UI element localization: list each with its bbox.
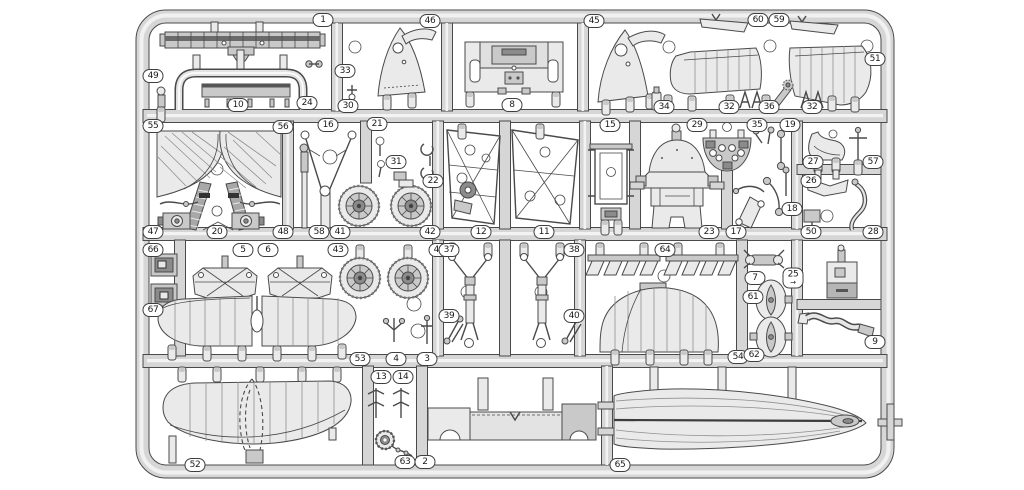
part-label-27: 27 — [803, 155, 824, 169]
part-label-56: 56 — [273, 120, 294, 134]
part-49-small-fitting — [157, 87, 165, 122]
sprue-parts-map: 1 46 45 60 59 49 33 51 24 10 30 8 34 32 … — [0, 0, 1024, 490]
part-label-8: 8 — [502, 98, 523, 112]
part-label-67: 67 — [143, 303, 164, 317]
part-number: 17 — [731, 227, 742, 237]
part-number: 32 — [724, 102, 735, 112]
part-label-50: 50 — [801, 225, 822, 239]
part-number: 16 — [323, 120, 334, 130]
part-label-24: 24 — [297, 96, 318, 110]
part-label-29: 29 — [687, 118, 708, 132]
part-label-18: 18 — [782, 202, 803, 216]
part-label-33: 33 — [335, 64, 356, 78]
part-label-42: 42 — [420, 225, 441, 239]
part-label-21: 21 — [367, 117, 388, 131]
part-number: 2 — [422, 457, 427, 467]
part-number: 58 — [314, 227, 325, 237]
part-number: 37 — [444, 245, 455, 255]
part-number: 65 — [615, 460, 626, 470]
part-number: 29 — [692, 120, 703, 130]
part-number: 40 — [569, 311, 580, 321]
part-number: 47 — [148, 227, 159, 237]
part-number: 62 — [749, 350, 760, 360]
part-label-52: 52 — [185, 458, 206, 472]
part-label-39: 39 — [439, 309, 460, 323]
part-number: 9 — [872, 337, 877, 347]
part-41-wheel — [339, 186, 379, 226]
part-label-37: 37 — [439, 243, 460, 257]
part-number: 20 — [212, 227, 223, 237]
part-number: 42 — [425, 227, 436, 237]
part-label-63: 63 — [395, 455, 416, 469]
part-number: 57 — [868, 157, 879, 167]
part-number: 49 — [148, 71, 159, 81]
part-label-26: 26 — [801, 174, 822, 188]
part-label-61: 61 — [743, 290, 764, 304]
part-label-48: 48 — [273, 225, 294, 239]
part-number: 10 — [233, 100, 244, 110]
part-label-31: 31 — [386, 155, 407, 169]
part-number: 48 — [278, 227, 289, 237]
part-label-65: 65 — [610, 458, 631, 472]
part-label-36: 36 — [759, 100, 780, 114]
part-label-arrow: → — [790, 280, 796, 287]
part-number: 12 — [476, 227, 487, 237]
part-number: 31 — [391, 157, 402, 167]
part-number: 30 — [343, 101, 354, 111]
part-label-3: 3 — [417, 352, 438, 366]
part-47-camera — [158, 213, 190, 229]
part-number: 59 — [774, 15, 785, 25]
part-number: 33 — [340, 66, 351, 76]
part-label-22: 22 — [423, 174, 444, 188]
part-label-20: 20 — [207, 225, 228, 239]
part-label-13: 13 — [371, 370, 392, 384]
part-number: 23 — [704, 227, 715, 237]
part-label-66: 66 — [143, 243, 164, 257]
part-number: 38 — [569, 245, 580, 255]
part-number: 54 — [733, 352, 744, 362]
part-number: 52 — [190, 460, 201, 470]
part-label-32: 32 — [719, 100, 740, 114]
part-label-25: 25 → — [783, 268, 804, 289]
part-label-49: 49 — [143, 69, 164, 83]
part-number: 60 — [753, 15, 764, 25]
part-number: 13 — [376, 372, 387, 382]
part-number: 61 — [748, 292, 759, 302]
part-number: 36 — [764, 102, 775, 112]
part-label-41: 41 — [330, 225, 351, 239]
part-label-58: 58 — [309, 225, 330, 239]
part-label-38: 38 — [564, 243, 585, 257]
part-label-55: 55 — [143, 119, 164, 133]
part-upper-wing-left — [670, 48, 761, 94]
part-number: 1 — [320, 15, 325, 25]
part-label-7: 7 — [745, 271, 766, 285]
part-label-46: 46 — [420, 14, 441, 28]
part-number: 8 — [509, 100, 514, 110]
part-label-40: 40 — [564, 309, 585, 323]
part-number: 46 — [425, 16, 436, 26]
part-label-23: 23 — [699, 225, 720, 239]
part-number: 67 — [148, 305, 159, 315]
part-number: 7 — [752, 273, 757, 283]
part-label-12: 12 — [471, 225, 492, 239]
part-number: 3 — [424, 354, 429, 364]
part-label-53: 53 — [350, 352, 371, 366]
part-label-19: 19 — [780, 118, 801, 132]
part-number: 14 — [398, 372, 409, 382]
part-label-15: 15 — [600, 118, 621, 132]
part-label-45: 45 — [584, 14, 605, 28]
part-label-1: 1 — [313, 13, 334, 27]
part-label-57: 57 — [863, 155, 884, 169]
part-number: 28 — [868, 227, 879, 237]
part-number: 55 — [148, 121, 159, 131]
part-label-35: 35 — [747, 118, 768, 132]
part-number: 43 — [333, 245, 344, 255]
part-label-59: 59 — [769, 13, 790, 27]
part-label-6: 6 — [258, 243, 279, 257]
part-label-60: 60 — [748, 13, 769, 27]
part-number: 15 — [605, 120, 616, 130]
part-number: 34 — [659, 102, 670, 112]
part-number: 24 — [302, 98, 313, 108]
part-label-62: 62 — [744, 348, 765, 362]
part-number: 50 — [806, 227, 817, 237]
part-number: 35 — [752, 120, 763, 130]
part-number: 22 — [428, 176, 439, 186]
part-label-16: 16 — [318, 118, 339, 132]
part-number: 21 — [372, 119, 383, 129]
part-label-34: 34 — [654, 100, 675, 114]
part-number: 26 — [806, 176, 817, 186]
part-label-28: 28 — [863, 225, 884, 239]
part-number: 41 — [335, 227, 346, 237]
part-label-4: 4 — [386, 352, 407, 366]
part-number: 45 — [589, 16, 600, 26]
part-number: 51 — [870, 54, 881, 64]
part-label-43: 43 — [328, 243, 349, 257]
part-number: 27 — [808, 157, 819, 167]
part-number: 18 — [787, 204, 798, 214]
part-number: 32 — [807, 102, 818, 112]
part-number: 63 — [400, 457, 411, 467]
part-label-64: 64 — [655, 243, 676, 257]
part-label-32: 32 — [802, 100, 823, 114]
part-label-2: 2 — [415, 455, 436, 469]
part-label-14: 14 — [393, 370, 414, 384]
part-number: 56 — [278, 122, 289, 132]
part-number: 53 — [355, 354, 366, 364]
part-label-17: 17 — [726, 225, 747, 239]
part-number: 19 — [785, 120, 796, 130]
part-label-10: 10 — [228, 98, 249, 112]
part-number: 4 — [393, 354, 398, 364]
part-number: 6 — [265, 245, 270, 255]
part-number: 11 — [539, 227, 550, 237]
part-number: 39 — [444, 311, 455, 321]
part-label-30: 30 — [338, 99, 359, 113]
part-48-camera — [232, 213, 264, 229]
part-number: 5 — [240, 245, 245, 255]
part-number: 64 — [660, 245, 671, 255]
part-label-9: 9 — [865, 335, 886, 349]
part-42-wheel — [391, 186, 431, 226]
part-number: 66 — [148, 245, 159, 255]
part-label-51: 51 — [865, 52, 886, 66]
part-label-5: 5 — [233, 243, 254, 257]
part-label-11: 11 — [534, 225, 555, 239]
part-label-47: 47 — [143, 225, 164, 239]
